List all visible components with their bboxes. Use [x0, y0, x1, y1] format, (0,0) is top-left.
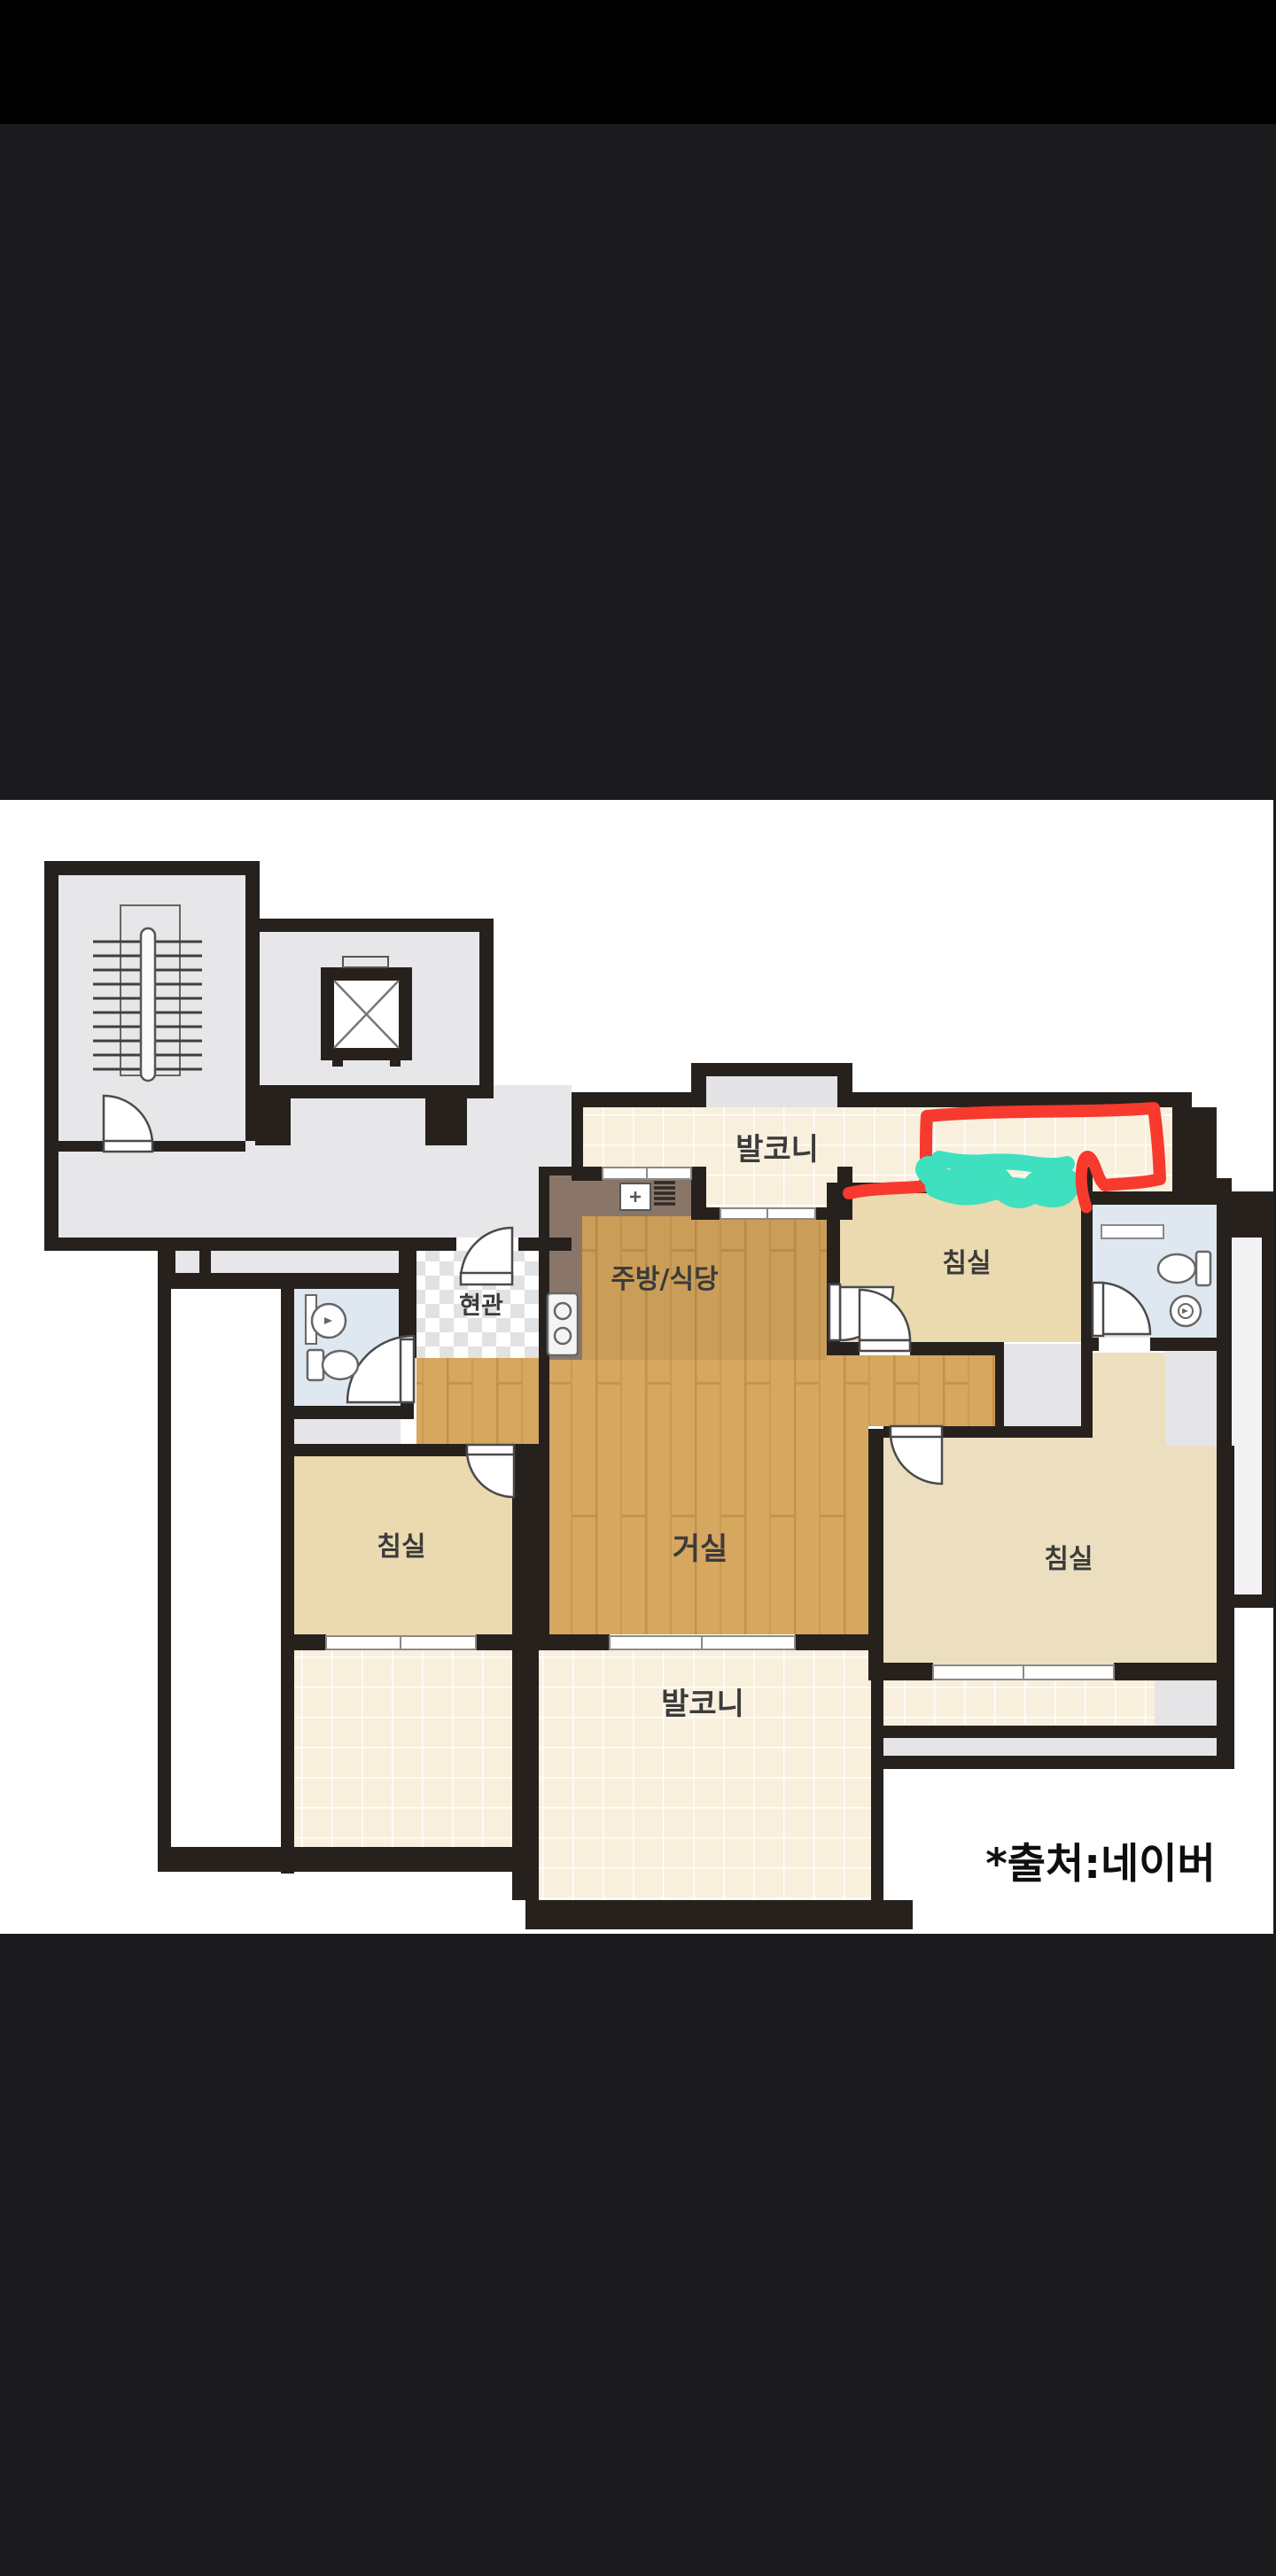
toilet-icon-right — [1158, 1252, 1210, 1285]
floorplan-image: 발코니 침실 주방/식당 현관 침실 거실 침실 발코니 *출처:네이버 — [0, 0, 1276, 2576]
status-band-black — [0, 0, 1276, 124]
screenshot-root: 발코니 침실 주방/식당 현관 침실 거실 침실 발코니 *출처:네이버 — [0, 0, 1276, 2576]
label-balcony-top: 발코니 — [735, 1132, 819, 1168]
source-caption: *출처:네이버 — [985, 1840, 1216, 1889]
teal-scribble — [929, 1159, 1069, 1197]
gas-stove-icon — [548, 1293, 578, 1355]
label-kitchen-dining: 주방/식당 — [611, 1264, 719, 1295]
label-living-room: 거실 — [673, 1532, 728, 1567]
toilet-icon-left — [307, 1350, 358, 1380]
viewer-background-lower — [0, 1934, 1276, 2576]
label-bedroom-left: 침실 — [377, 1532, 425, 1563]
viewer-background-upper — [0, 124, 1276, 800]
washer-icon — [1171, 1296, 1201, 1326]
label-entrance: 현관 — [459, 1292, 503, 1320]
label-bedroom-top-right: 침실 — [942, 1248, 991, 1279]
label-bedroom-bottom-right: 침실 — [1044, 1544, 1093, 1575]
label-balcony-bottom: 발코니 — [661, 1687, 744, 1722]
range-hood-icon — [620, 1183, 650, 1210]
